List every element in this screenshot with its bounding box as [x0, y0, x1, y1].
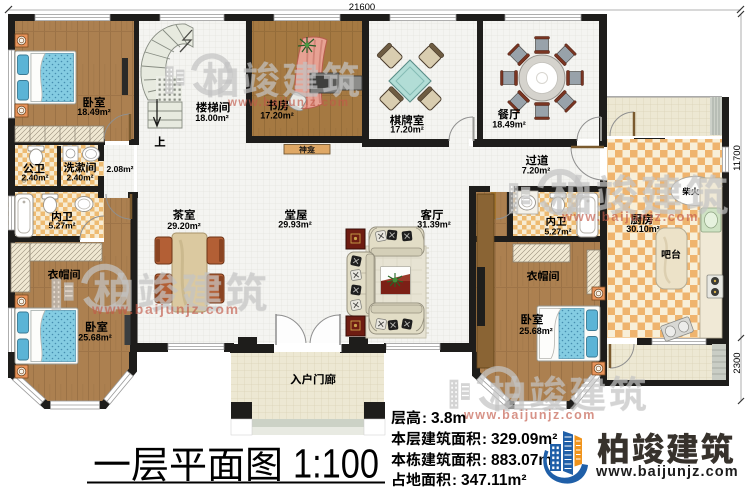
svg-text:2300: 2300 — [732, 352, 743, 373]
svg-text::: : — [482, 452, 487, 469]
svg-text:www.baijunjz.com: www.baijunjz.com — [463, 408, 596, 422]
svg-text:11700: 11700 — [732, 145, 743, 171]
svg-text:347.11m²: 347.11m² — [461, 472, 527, 489]
svg-text:29.20m²: 29.20m² — [167, 221, 201, 231]
svg-text:2.40m²: 2.40m² — [22, 173, 49, 183]
svg-text:17.20m²: 17.20m² — [260, 111, 294, 121]
svg-text:18.49m²: 18.49m² — [492, 120, 526, 130]
svg-text:29.93m²: 29.93m² — [278, 220, 312, 230]
svg-text:www.baijunjz.com: www.baijunjz.com — [595, 464, 739, 480]
svg-text:329.09m²: 329.09m² — [491, 431, 557, 448]
svg-text:21600: 21600 — [349, 2, 375, 13]
svg-text:www.baijunjz.com: www.baijunjz.com — [561, 209, 699, 224]
svg-text:30.10m²: 30.10m² — [626, 224, 660, 234]
svg-text:www.baijunjz.com: www.baijunjz.com — [227, 97, 349, 109]
svg-text:25.68m²: 25.68m² — [78, 333, 112, 343]
svg-text:5.27m²: 5.27m² — [49, 221, 76, 231]
svg-text:25.68m²: 25.68m² — [519, 326, 553, 336]
svg-text:www.baijunjz.com: www.baijunjz.com — [91, 301, 240, 317]
svg-text::: : — [422, 410, 427, 427]
svg-text:31.39m²: 31.39m² — [417, 220, 451, 230]
svg-text:17.20m²: 17.20m² — [390, 125, 424, 135]
svg-text:18.49m²: 18.49m² — [77, 107, 111, 117]
svg-text:5.27m²: 5.27m² — [545, 227, 572, 237]
svg-text::: : — [482, 431, 487, 448]
svg-text:1:100: 1:100 — [293, 441, 379, 487]
svg-text::: : — [452, 472, 457, 489]
svg-text:3.8m: 3.8m — [431, 410, 466, 427]
svg-text:2.08m²: 2.08m² — [107, 164, 134, 174]
svg-text:2.40m²: 2.40m² — [67, 173, 94, 183]
svg-text:18.00m²: 18.00m² — [195, 113, 229, 123]
